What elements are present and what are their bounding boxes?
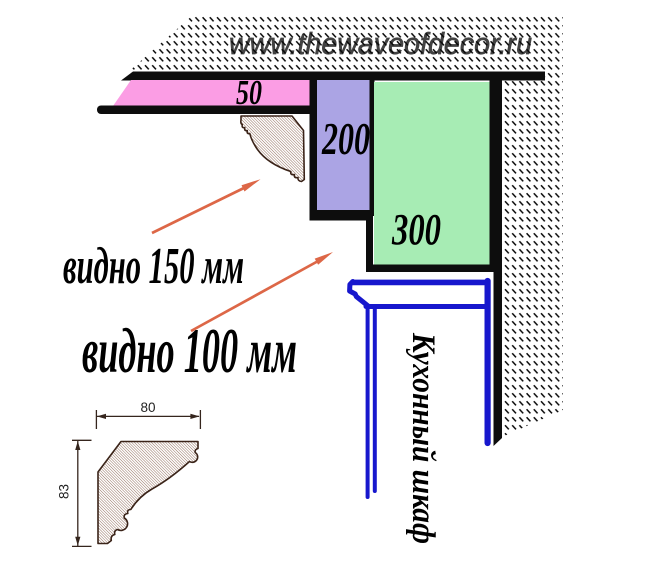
svg-text:видно 150 мм: видно 150 мм <box>63 238 244 295</box>
svg-text:50: 50 <box>236 73 262 112</box>
svg-text:83: 83 <box>57 484 72 499</box>
svg-text:Кухонный шкаф: Кухонный шкаф <box>405 332 441 544</box>
svg-text:200: 200 <box>321 113 370 164</box>
svg-text:80: 80 <box>140 400 155 415</box>
svg-text:видно 100 мм: видно 100 мм <box>82 315 297 386</box>
svg-text:300: 300 <box>391 205 441 254</box>
